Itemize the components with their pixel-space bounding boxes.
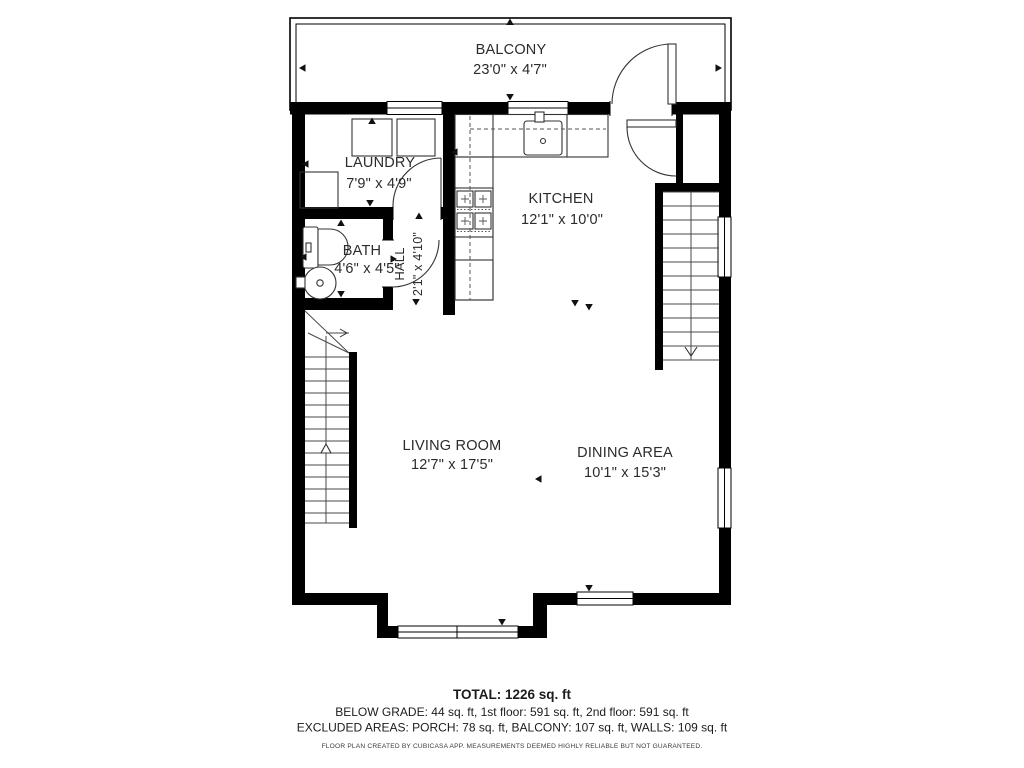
dining-area-dims: 10'1" x 15'3" — [584, 465, 666, 481]
laundry-cabinet-icon — [300, 172, 338, 208]
laundry-label: LAUNDRY — [345, 155, 416, 171]
living-room-label: LIVING ROOM — [403, 438, 502, 454]
dryer-icon — [397, 119, 435, 156]
window — [398, 626, 457, 638]
floor-plan-canvas: BALCONY 23'0" x 4'7" LAUNDRY 7'9" x 4'9"… — [0, 0, 1024, 768]
total-area-text: TOTAL: 1226 sq. ft — [453, 687, 572, 702]
stove-icon — [455, 188, 493, 237]
wall-bath-bottom — [298, 298, 393, 310]
wall-left — [292, 102, 305, 605]
stair-landing-door — [627, 120, 676, 176]
window — [718, 217, 731, 277]
opening-balcony-door — [610, 101, 672, 116]
kitchen-dims: 12'1" x 10'0" — [521, 212, 603, 228]
kitchen-sink-icon — [524, 112, 562, 155]
balcony-label: BALCONY — [476, 42, 547, 58]
stairs-up-arrow-icon — [321, 444, 331, 453]
wall-stairs-railing — [349, 352, 357, 528]
window — [457, 626, 518, 638]
window — [387, 102, 442, 115]
wall-right — [719, 102, 731, 605]
hall-dims: 2'1" x 4'10" — [411, 232, 425, 296]
kitchen-base-cabinet — [455, 260, 493, 300]
disclaimer-text: FLOOR PLAN CREATED BY CUBICASA APP. MEAS… — [322, 743, 703, 750]
upper-cabinets-dashed — [470, 116, 606, 300]
wall-stairs-top — [655, 183, 731, 192]
bath-label: BATH — [343, 243, 381, 259]
wall-kitchen-left — [443, 102, 455, 315]
kitchen-label: KITCHEN — [528, 191, 593, 207]
summary-footer: TOTAL: 1226 sq. ft BELOW GRADE: 44 sq. f… — [297, 687, 728, 750]
laundry-dims: 7'9" x 4'9" — [346, 176, 412, 192]
floor-plan-page: BALCONY 23'0" x 4'7" LAUNDRY 7'9" x 4'9"… — [0, 0, 1024, 768]
floors-area-text: BELOW GRADE: 44 sq. ft, 1st floor: 591 s… — [335, 705, 689, 719]
stairs-down — [663, 192, 719, 360]
living-room-dims: 12'7" x 17'5" — [411, 457, 493, 473]
window — [718, 468, 731, 528]
excluded-area-text: EXCLUDED AREAS: PORCH: 78 sq. ft, BALCON… — [297, 721, 728, 735]
window — [577, 592, 633, 605]
dining-area-label: DINING AREA — [577, 445, 673, 461]
washer-icon — [352, 119, 392, 156]
stairs-up — [305, 311, 349, 523]
wall-closet-left — [676, 114, 683, 183]
balcony-dims: 23'0" x 4'7" — [473, 62, 547, 78]
hall-label: HALL — [392, 247, 407, 280]
wall-bottom-left — [292, 593, 382, 605]
wall-stairs-left — [655, 192, 663, 370]
bath-dims: 4'6" x 4'5" — [334, 261, 400, 277]
